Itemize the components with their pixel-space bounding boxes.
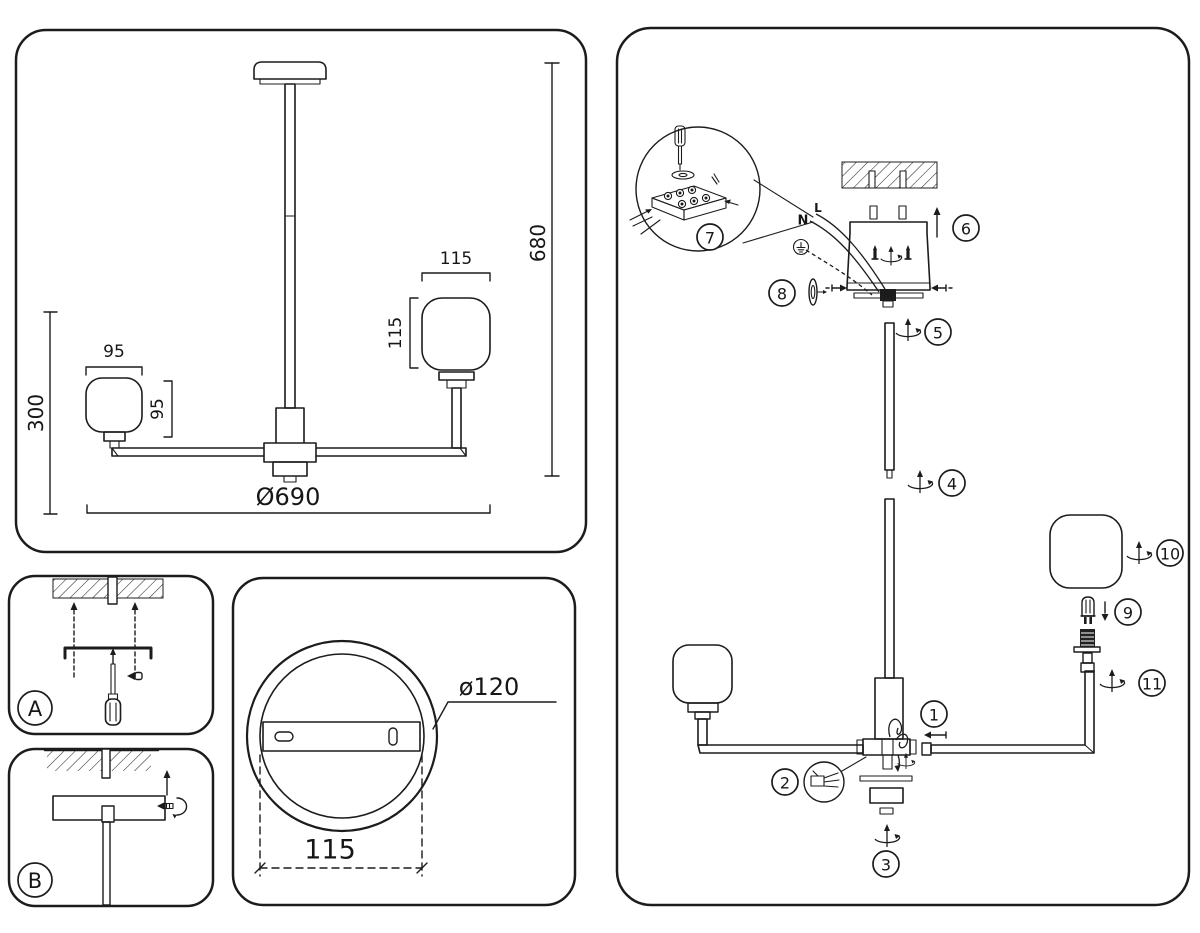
step-5-label: 5 bbox=[933, 324, 943, 343]
left-shade bbox=[673, 645, 732, 703]
step-3-badge: 3 bbox=[873, 851, 899, 877]
panel-a-badge: A bbox=[18, 691, 52, 725]
rotate-icon bbox=[896, 318, 921, 341]
hub-cup bbox=[273, 462, 307, 476]
g9-bulb-icon bbox=[1081, 597, 1095, 624]
dim-label-115-height: 115 bbox=[386, 317, 406, 349]
rotate-icon bbox=[875, 824, 900, 847]
right-socket-stub bbox=[452, 388, 461, 448]
rod-thread-nipple bbox=[887, 470, 892, 478]
drill-hole-left bbox=[869, 171, 875, 188]
step-6-badge: 6 bbox=[953, 215, 979, 241]
dim-label-95-width: 95 bbox=[103, 342, 125, 362]
left-socket-collar bbox=[104, 432, 125, 441]
step-2-badge: 2 bbox=[772, 769, 798, 795]
left-shade bbox=[86, 378, 142, 432]
finial-nut bbox=[880, 808, 893, 814]
canopy-hub bbox=[102, 806, 114, 822]
right-socket-collar bbox=[439, 372, 474, 380]
lamp-socket bbox=[1080, 629, 1095, 647]
threaded-rod bbox=[102, 749, 110, 778]
connector-wire-1 bbox=[824, 773, 838, 778]
hanging-rod bbox=[285, 84, 295, 408]
wire-connector bbox=[811, 776, 824, 786]
panel-a-label: A bbox=[28, 697, 43, 721]
screw-guide-right bbox=[132, 602, 139, 678]
bracket-mounting-panel: A bbox=[9, 576, 213, 734]
dim-label-680: 680 bbox=[526, 224, 550, 262]
step-9-label: 9 bbox=[1123, 604, 1133, 623]
wire-live-label: L bbox=[814, 201, 822, 215]
front-view-panel: 95 95 115 115 300 bbox=[16, 30, 586, 552]
left-arm-assembly bbox=[673, 645, 863, 753]
connector-detail-bubble bbox=[804, 762, 844, 802]
step-10-label: 10 bbox=[1160, 545, 1180, 564]
screwdriver-icon bbox=[675, 126, 685, 170]
connector-lever bbox=[813, 771, 818, 776]
step-7-label: 7 bbox=[705, 229, 715, 248]
connector-leader-line bbox=[842, 757, 866, 771]
up-arrow-icon bbox=[934, 207, 941, 237]
step-4-badge: 4 bbox=[939, 470, 965, 496]
insert-arrow-icon bbox=[1102, 602, 1109, 621]
connector-wire-2 bbox=[824, 780, 839, 782]
arm-corner-miter bbox=[1085, 745, 1094, 753]
wing-nut-icon bbox=[127, 672, 142, 680]
ceiling-hole-rod bbox=[108, 577, 117, 604]
assembly-panel: 6 8 bbox=[617, 28, 1189, 905]
bottom-cup bbox=[870, 788, 903, 803]
hub-nub bbox=[284, 476, 296, 482]
chandelier-drawing bbox=[86, 62, 490, 482]
arm-left-bevel bbox=[112, 448, 118, 456]
rod-lower-section bbox=[885, 499, 894, 678]
left-arm-stub bbox=[698, 719, 707, 745]
dim-label-95-height: 95 bbox=[148, 398, 168, 420]
canopy-screw-left bbox=[872, 245, 879, 259]
front-view-panel-border bbox=[16, 30, 586, 552]
hub-stem bbox=[883, 755, 892, 769]
step-7-badge: 7 bbox=[697, 224, 723, 250]
ground-icon bbox=[794, 240, 809, 255]
right-shade bbox=[422, 298, 490, 370]
canopy-underside-panel: ø120 115 bbox=[233, 578, 575, 905]
grub-screw-icon bbox=[924, 732, 946, 739]
rotate-icon bbox=[1127, 541, 1152, 564]
connector-wire-3 bbox=[824, 786, 838, 787]
right-arm-assembly bbox=[922, 629, 1100, 755]
canopy-fixing-panel: B bbox=[9, 749, 213, 906]
bottom-plate bbox=[860, 776, 912, 781]
canopy-diameter-label: ø120 bbox=[459, 673, 520, 701]
dim-label-300: 300 bbox=[24, 394, 48, 432]
dim-right-shade-height: 115 bbox=[386, 298, 418, 368]
left-socket-stub bbox=[110, 441, 119, 448]
diameter-leader-line bbox=[433, 702, 556, 729]
instruction-sheet: 95 95 115 115 300 bbox=[0, 0, 1200, 933]
step-4-label: 4 bbox=[947, 475, 957, 494]
left-socket-collar bbox=[688, 703, 718, 712]
ceiling-hatch bbox=[842, 162, 937, 188]
step-3-label: 3 bbox=[881, 856, 891, 875]
dim-height-680: 680 bbox=[526, 63, 559, 476]
dim-right-shade-width: 115 bbox=[422, 249, 490, 281]
screw-guide-left bbox=[71, 602, 78, 678]
hub-wire-loop bbox=[896, 734, 908, 748]
hub-wires bbox=[889, 719, 902, 737]
supply-wires: L N bbox=[794, 201, 886, 295]
arm-hub bbox=[857, 719, 916, 772]
dim-drop-300: 300 bbox=[24, 312, 57, 514]
terminal-block bbox=[630, 174, 738, 234]
step-8-badge: 8 bbox=[769, 280, 795, 306]
ceiling-hatch bbox=[47, 751, 151, 771]
step-6-label: 6 bbox=[961, 220, 971, 239]
step-1-label: 1 bbox=[929, 706, 939, 725]
center-hub bbox=[264, 443, 316, 462]
step-11-label: 11 bbox=[1142, 675, 1162, 694]
drill-hole-right bbox=[900, 171, 906, 188]
left-socket-neck bbox=[695, 712, 710, 719]
down-rod bbox=[103, 822, 110, 905]
step-9-badge: 9 bbox=[1115, 599, 1141, 625]
dim-label-690: Ø690 bbox=[256, 483, 321, 511]
left-arm-tube bbox=[698, 745, 863, 753]
washer-hole bbox=[679, 173, 687, 176]
screwdriver-icon bbox=[106, 648, 121, 725]
step-1-badge: 1 bbox=[921, 701, 947, 727]
rotate-icon bbox=[908, 470, 933, 493]
washer-icon bbox=[672, 171, 694, 179]
rotate-icon bbox=[881, 246, 902, 266]
lamp-body bbox=[276, 408, 304, 444]
dim-label-115-width: 115 bbox=[440, 249, 472, 269]
panel-b-badge: B bbox=[18, 863, 52, 897]
socket-stem bbox=[1083, 653, 1092, 663]
dim-diameter-690: Ø690 bbox=[87, 483, 490, 513]
side-screw-right-icon bbox=[931, 285, 952, 292]
dim-left-shade-height: 95 bbox=[148, 381, 172, 437]
step-8-label: 8 bbox=[777, 285, 787, 304]
step-11-badge: 11 bbox=[1139, 670, 1165, 696]
wall-anchor-right bbox=[899, 206, 906, 219]
right-socket-neck bbox=[447, 380, 466, 388]
rod-upper-section bbox=[885, 323, 894, 470]
up-arrow-icon bbox=[164, 770, 171, 795]
canopy-screw-right bbox=[905, 245, 912, 259]
panel-b-label: B bbox=[28, 869, 42, 893]
right-arm-tube bbox=[931, 671, 1094, 753]
step-5-badge: 5 bbox=[925, 319, 951, 345]
wall-anchor-left bbox=[870, 206, 877, 219]
arm-right-bevel bbox=[460, 448, 466, 456]
mounting-bracket bbox=[65, 648, 151, 658]
side-screw-icon bbox=[157, 798, 187, 819]
step-2-label: 2 bbox=[780, 774, 790, 793]
arm-coupler bbox=[922, 743, 931, 755]
assembly-panel-border bbox=[617, 28, 1189, 905]
rotate-icon bbox=[1100, 669, 1125, 692]
dim-left-shade-width: 95 bbox=[86, 342, 142, 375]
side-screw-left-icon bbox=[826, 285, 847, 292]
step-10-badge: 10 bbox=[1157, 540, 1183, 566]
right-shade bbox=[1050, 515, 1122, 588]
thumb-nut-icon bbox=[809, 279, 827, 305]
ceiling-cup bbox=[254, 62, 326, 79]
socket-flange bbox=[1074, 647, 1100, 652]
wire-arrowhead bbox=[895, 765, 901, 772]
hole-spacing-label: 115 bbox=[304, 835, 356, 866]
